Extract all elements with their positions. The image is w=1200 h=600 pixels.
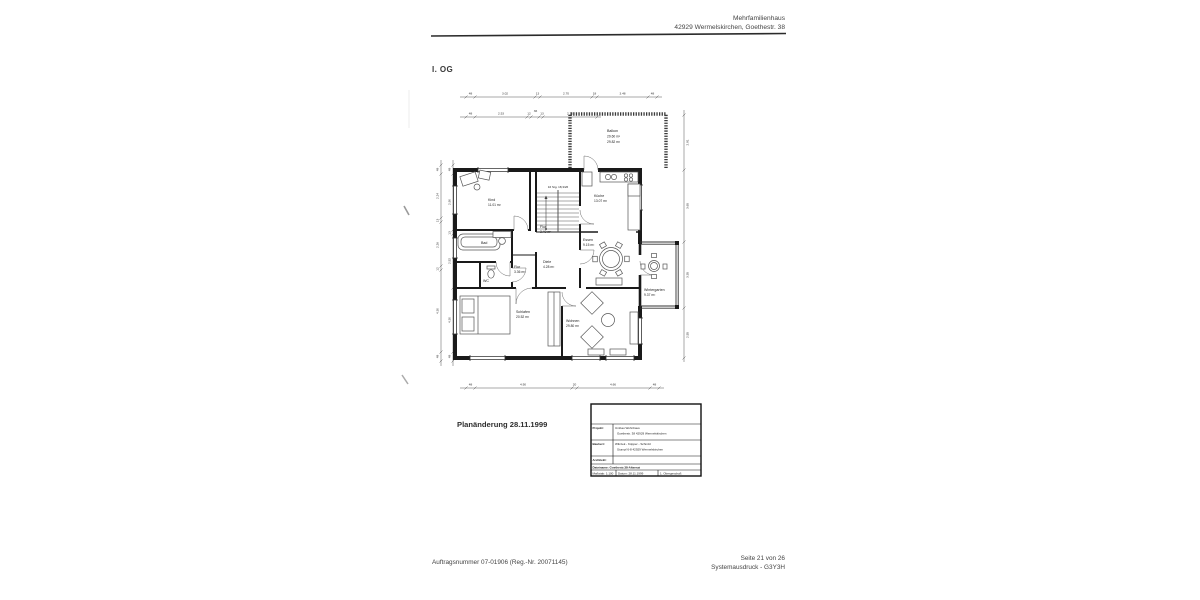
titleblock-bauherr-2: Stumpf 6-8 42929 Wermelskirchen [617,448,663,452]
header-rule [431,34,786,37]
footer-order-number: Auftragsnummer 07-01906 (Reg.-Nr. 200711… [432,559,568,566]
room-area-wintergarten: 9.37 m² [644,293,656,297]
dim-label: 3.48 [619,92,625,96]
kitchen-counter [582,172,640,230]
titleblock-architekt-label: Architekt: [593,458,607,462]
dim-label: 2.70 [563,92,569,96]
dim-label: 48 [469,112,473,116]
dim-label: 48 [469,92,473,96]
dining-table [593,242,629,276]
room-area-flur: 3.36 m² [514,270,526,274]
room-label-diele: Diele [543,260,551,264]
dim-label: 36 [534,109,538,113]
sink [499,238,506,245]
room-label-flur-oben: Flur [540,225,547,229]
room-label-flur: Flur [514,265,521,269]
dim-label: 2.53 [498,112,504,116]
room-label-kind: Kind [488,198,495,202]
scan-artifacts [402,90,409,384]
coffee-table [602,314,615,327]
kind-desk [460,170,491,190]
dim-label: 2.26 [436,242,440,248]
stairs-label: 16 Stg. 18,3/26 [548,185,569,189]
room-area-diele: 4.28 m² [543,265,555,269]
dim-label: 3.65 [686,203,690,209]
header-line1: Mehrfamilienhaus [733,15,786,22]
room-label-schlafen: Schlafen [516,310,530,314]
header-line2: 42929 Wermelskirchen, Goethestr. 38 [674,24,785,31]
scanned-floorplan-page: Mehrfamilienhaus 42929 Wermelskirchen, G… [0,0,1200,600]
bed [460,296,510,334]
room-label-kueche: Küche [594,194,604,198]
sideboard-wohnen [630,312,638,344]
plan-change-note: Planänderung 28.11.1999 [457,420,547,429]
dim-label: 48 [436,355,440,359]
room-area-kueche: 13.07 m² [594,199,608,203]
dim-label: 48 [436,168,440,172]
titleblock-massstab: Maßstab: 1:100 [593,472,614,476]
dim-label: 13 [540,112,544,116]
dim-label: 2.55 [686,332,690,338]
titleblock-datei: Dateiname: Goethestr.38-Alternat [593,466,641,470]
title-block: Projekt: Umbau Wohnhaus Goethestr. 38 42… [591,404,701,476]
dim-label: 2.81 [686,139,690,145]
bath-counter [493,232,511,238]
dim-label: 2.24 [436,193,440,199]
dim-label: 4.90 [520,383,526,387]
page-header: Mehrfamilienhaus 42929 Wermelskirchen, G… [431,15,786,36]
dim-label: 4.30 [436,308,440,314]
room-area-flur-oben: 3.40 m² [540,230,552,234]
room-area-wohnen: 29.80 m² [566,324,580,328]
toilet [487,266,495,278]
wardrobe [548,292,560,346]
floor-label: I. OG [432,65,453,74]
room-area-balkon-1: 29.60 m² [607,135,621,139]
dim-label: 3.02 [502,92,508,96]
room-label-wintergarten: Wintergarten [644,288,665,292]
dim-label: 4.30 [448,317,452,323]
balcony: Balkon 29.60 m² 29.82 m² [570,114,666,168]
room-area-kind: 11.01 m² [488,203,502,207]
dim-label: 2.52 [448,258,452,264]
dim-label: 48 [448,168,452,172]
titleblock-projekt-label: Projekt: [593,426,604,430]
room-label-balkon: Balkon [607,129,618,133]
room-label-wohnen: Wohnen [566,319,579,323]
floorplan-drawing: Mehrfamilienhaus 42929 Wermelskirchen, G… [0,0,1200,600]
footer-page: Seite 21 von 26 [741,555,786,562]
page-footer: Auftragsnummer 07-01906 (Reg.-Nr. 200711… [432,555,785,571]
dim-label: 13 [536,92,540,96]
room-area-schlafen: 20.52 m² [516,315,530,319]
dim-label: 48 [651,92,655,96]
dim-label: 13 [436,219,440,223]
dim-label: 48 [653,383,657,387]
dim-label: 3.35 [686,272,690,278]
dim-label: 13 [448,231,452,235]
titleblock-datum: Datum: 28.11.1999 [618,472,644,476]
sideboard-essen [596,278,622,285]
titleblock-projekt-1: Umbau Wohnhaus [615,426,640,430]
titleblock-bauherr-1: Wilczek - Küpper - Schmitz [615,442,652,446]
dim-label: 4.66 [610,383,616,387]
dim-label: 12 [527,112,531,116]
sofa-group [581,292,638,355]
dim-label: 48 [448,355,452,359]
dim-label: 12 [436,267,440,271]
titleblock-bauherr-label: Bauherr: [593,442,606,446]
dim-label: 18 [593,92,597,96]
room-area-balkon-2: 29.82 m² [607,140,621,144]
dim-label: 2.90 [448,199,452,205]
dim-label: 48 [469,383,473,387]
titleblock-geschoss: 1. Obergeschoß [660,472,682,476]
room-label-wc: WC [483,279,489,283]
room-area-essen: 9.15 m² [583,243,595,247]
room-label-bad: Bad [481,241,487,245]
dim-label: 20 [573,383,577,387]
titleblock-projekt-2: Goethestr. 38 42929 Wermelskirchen [617,432,667,436]
room-label-essen: Essen [583,238,593,242]
footer-printout: Systemausdruck - G3Y3H [711,564,785,571]
